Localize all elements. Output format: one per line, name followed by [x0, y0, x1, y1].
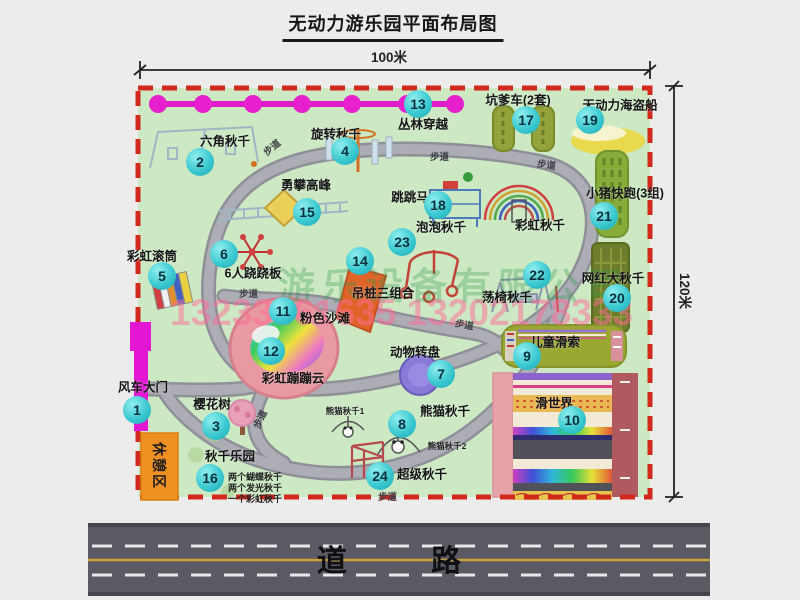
label-hanging-pile-combo: 吊桩三组合	[352, 283, 415, 302]
marker-11-pink-beach: 11	[269, 297, 297, 325]
marker-7-animal-carousel: 7	[427, 360, 455, 388]
playground-layout-map: 游乐设备有限公司 13233861635 13202178333 无动力游乐园平…	[0, 0, 800, 600]
marker-15-climbing-peak: 15	[293, 198, 321, 226]
label-kengdie-car: 坑爹车(2套)	[485, 90, 550, 109]
label-rainbow-bounce-cloud: 彩虹蹦蹦云	[262, 368, 325, 387]
walkway-label: 步道	[536, 156, 557, 173]
marker-2-hexagon-swing: 2	[186, 148, 214, 176]
label-swing-park: 秋千乐园	[205, 446, 255, 465]
label-hexagon-swing: 六角秋千	[200, 131, 250, 150]
marker-4-rotating-swing: 4	[331, 137, 359, 165]
label-super-swing: 超级秋千	[397, 464, 447, 483]
marker-9-kids-zipline: 9	[513, 342, 541, 370]
label-bubble-swing: 泡泡秋千	[416, 217, 466, 236]
marker-13-jungle-crossing: 13	[404, 90, 432, 118]
marker-21-piggy-run: 21	[590, 202, 618, 230]
road-label: 道 路	[317, 536, 499, 580]
page-title: 无动力游乐园平面布局图	[283, 10, 504, 42]
label-six-person-seesaw: 6人跷跷板	[225, 263, 282, 282]
swing-park-note-3: 一个彩虹秋千	[228, 492, 282, 505]
marker-10-slide-world: 10	[558, 406, 586, 434]
rest-area-label: 休憩区	[149, 442, 169, 490]
marker-16-swing-park: 16	[196, 464, 224, 492]
marker-19-pirate-ship: 19	[576, 106, 604, 134]
label-panda-swing-2: 熊猫秋千2	[428, 440, 467, 452]
walkway-label: 步道	[430, 149, 449, 163]
marker-18-jumping-horse: 18	[424, 191, 452, 219]
label-climbing-peak: 勇攀高峰	[281, 175, 331, 194]
walkway-label: 步道	[454, 315, 475, 332]
label-windmill-gate: 风车大门	[118, 377, 168, 396]
marker-24-super-swing: 24	[366, 462, 394, 490]
marker-22-chair-swing: 22	[523, 261, 551, 289]
marker-17-kengdie-car: 17	[512, 106, 540, 134]
label-cherry-tree: 樱花树	[193, 394, 231, 413]
width-dimension-label: 100米	[371, 46, 407, 66]
label-panda-swing: 熊猫秋千	[420, 401, 470, 420]
label-pink-beach: 粉色沙滩	[300, 308, 350, 327]
marker-3-cherry-tree: 3	[202, 412, 230, 440]
marker-1-windmill-gate: 1	[123, 396, 151, 424]
marker-5-rainbow-roller: 5	[148, 262, 176, 290]
label-animal-carousel: 动物转盘	[390, 342, 440, 361]
label-chair-swing: 荡椅秋千	[482, 287, 532, 306]
marker-8-panda-swing: 8	[388, 410, 416, 438]
label-rainbow-swing: 彩虹秋千	[515, 215, 565, 234]
label-piggy-run: 小猪快跑(3组)	[586, 183, 664, 202]
walkway-label: 步道	[378, 489, 397, 503]
height-dimension-label: 120米	[676, 273, 696, 309]
walkway-label: 步道	[239, 286, 258, 300]
marker-12-rainbow-bounce-cloud: 12	[257, 337, 285, 365]
marker-6-six-person-seesaw: 6	[210, 240, 238, 268]
marker-23-bubble-swing: 23	[388, 228, 416, 256]
label-panda-swing-1: 熊猫秋千1	[326, 405, 365, 417]
label-rainbow-roller: 彩虹滚筒	[127, 246, 177, 265]
marker-14-hanging-pile-combo: 14	[346, 247, 374, 275]
marker-20-big-swing: 20	[603, 284, 631, 312]
